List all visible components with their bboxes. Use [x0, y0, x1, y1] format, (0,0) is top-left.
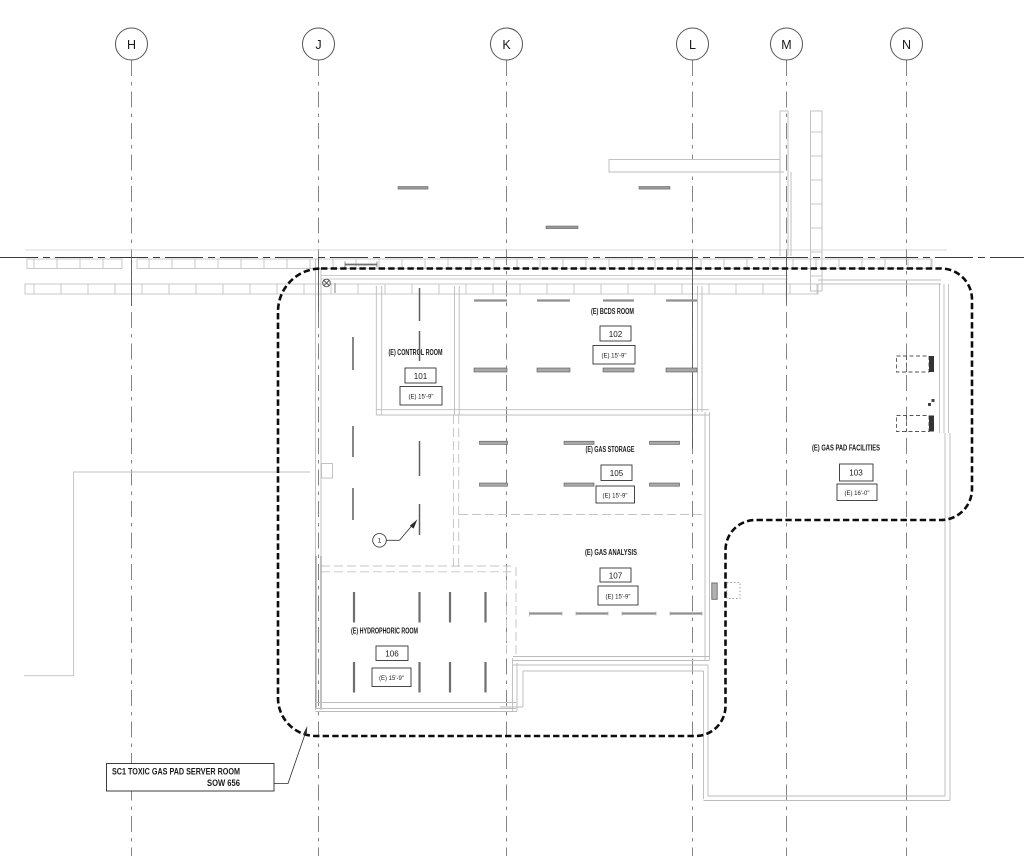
svg-text:(E) GAS ANALYSIS: (E) GAS ANALYSIS — [585, 548, 637, 557]
svg-text:1: 1 — [378, 538, 382, 545]
svg-text:(E) 16'-0": (E) 16'-0" — [845, 490, 871, 497]
svg-text:SOW 656: SOW 656 — [207, 778, 240, 788]
svg-text:105: 105 — [610, 468, 624, 478]
svg-text:J: J — [315, 38, 321, 52]
svg-text:(E) 15'-9": (E) 15'-9" — [603, 493, 629, 500]
svg-text:(E) HYDROPHORIC ROOM: (E) HYDROPHORIC ROOM — [351, 627, 418, 636]
svg-text:M: M — [781, 38, 791, 52]
svg-text:(E) GAS STORAGE: (E) GAS STORAGE — [586, 445, 635, 454]
svg-text:N: N — [902, 38, 911, 52]
svg-text:106: 106 — [385, 649, 399, 659]
svg-text:101: 101 — [414, 371, 428, 381]
svg-text:(E) 15'-9": (E) 15'-9" — [379, 675, 405, 682]
svg-text:(E) 15'-9": (E) 15'-9" — [409, 394, 435, 401]
svg-text:(E) CONTROL ROOM: (E) CONTROL ROOM — [389, 348, 443, 357]
svg-text:(E) 15'-9": (E) 15'-9" — [602, 353, 628, 360]
svg-text:(E) GAS PAD FACILITIES: (E) GAS PAD FACILITIES — [812, 444, 880, 453]
svg-text:H: H — [127, 38, 136, 52]
svg-text:SC1 TOXIC GAS PAD SERVER ROOM: SC1 TOXIC GAS PAD SERVER ROOM — [112, 767, 240, 777]
svg-text:103: 103 — [849, 468, 863, 478]
svg-text:(E) BCDS ROOM: (E) BCDS ROOM — [591, 307, 634, 316]
svg-text:102: 102 — [609, 329, 623, 339]
svg-text:L: L — [689, 38, 696, 52]
svg-text:107: 107 — [609, 571, 623, 581]
svg-text:(E) 15'-9": (E) 15'-9" — [606, 594, 632, 601]
svg-text:K: K — [502, 38, 511, 52]
